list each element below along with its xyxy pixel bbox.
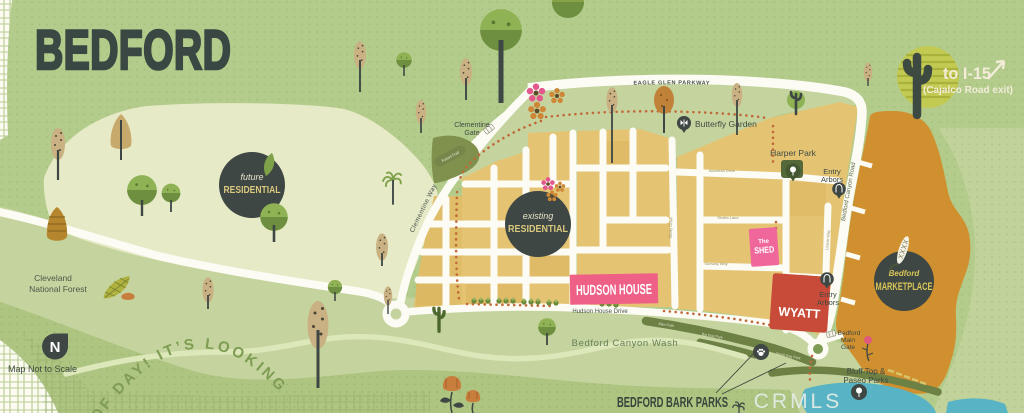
svg-text:Sunway Way: Sunway Way (704, 261, 727, 266)
svg-text:MARKETPLACE: MARKETPLACE (876, 281, 933, 293)
svg-text:Main: Main (841, 337, 855, 344)
svg-text:Bedford Canyon Wash: Bedford Canyon Wash (572, 338, 679, 349)
svg-text:Harper Park: Harper Park (770, 148, 817, 158)
svg-text:Map Not to Scale: Map Not to Scale (8, 364, 77, 374)
svg-text:Bluff Top &: Bluff Top & (847, 367, 886, 376)
svg-text:EAGLE GLEN PARKWAY: EAGLE GLEN PARKWAY (633, 80, 710, 86)
svg-text:Paseo Parks: Paseo Parks (843, 376, 888, 385)
svg-text:WYATT: WYATT (778, 305, 821, 322)
svg-text:HUDSON HOUSE: HUDSON HOUSE (576, 282, 652, 299)
svg-text:Arbors: Arbors (817, 298, 839, 307)
svg-text:to I-15: to I-15 (943, 64, 991, 83)
svg-text:Gate: Gate (841, 344, 855, 351)
svg-text:Gate: Gate (464, 130, 479, 137)
svg-text:BEDFORD: BEDFORD (35, 19, 231, 82)
svg-text:SHED: SHED (754, 244, 775, 255)
svg-text:existing: existing (523, 211, 554, 221)
svg-text:future: future (240, 172, 263, 182)
svg-text:Alameda Drive: Alameda Drive (709, 168, 736, 173)
svg-text:Arbors: Arbors (821, 175, 843, 184)
svg-text:RESIDENTIAL: RESIDENTIAL (224, 184, 281, 196)
svg-text:Cleveland: Cleveland (34, 273, 72, 283)
svg-text:RESIDENTIAL: RESIDENTIAL (508, 223, 568, 235)
svg-text:Butterfly Garden: Butterfly Garden (695, 119, 757, 129)
svg-text:Bedford: Bedford (838, 330, 861, 337)
svg-text:CRMLS: CRMLS (754, 390, 843, 413)
svg-text:Bedford: Bedford (889, 269, 921, 278)
svg-text:Sheila Lane: Sheila Lane (717, 215, 739, 220)
svg-text:Hudson House Drive: Hudson House Drive (572, 309, 628, 315)
svg-text:N: N (50, 339, 61, 356)
svg-text:Clementine: Clementine (454, 122, 490, 129)
svg-text:National Forest: National Forest (29, 284, 87, 294)
svg-text:BEDFORD BARK PARKS: BEDFORD BARK PARKS (617, 394, 728, 411)
svg-text:(Cajalco Road exit): (Cajalco Road exit) (923, 85, 1013, 96)
svg-text:Shelly Drive: Shelly Drive (668, 216, 674, 238)
